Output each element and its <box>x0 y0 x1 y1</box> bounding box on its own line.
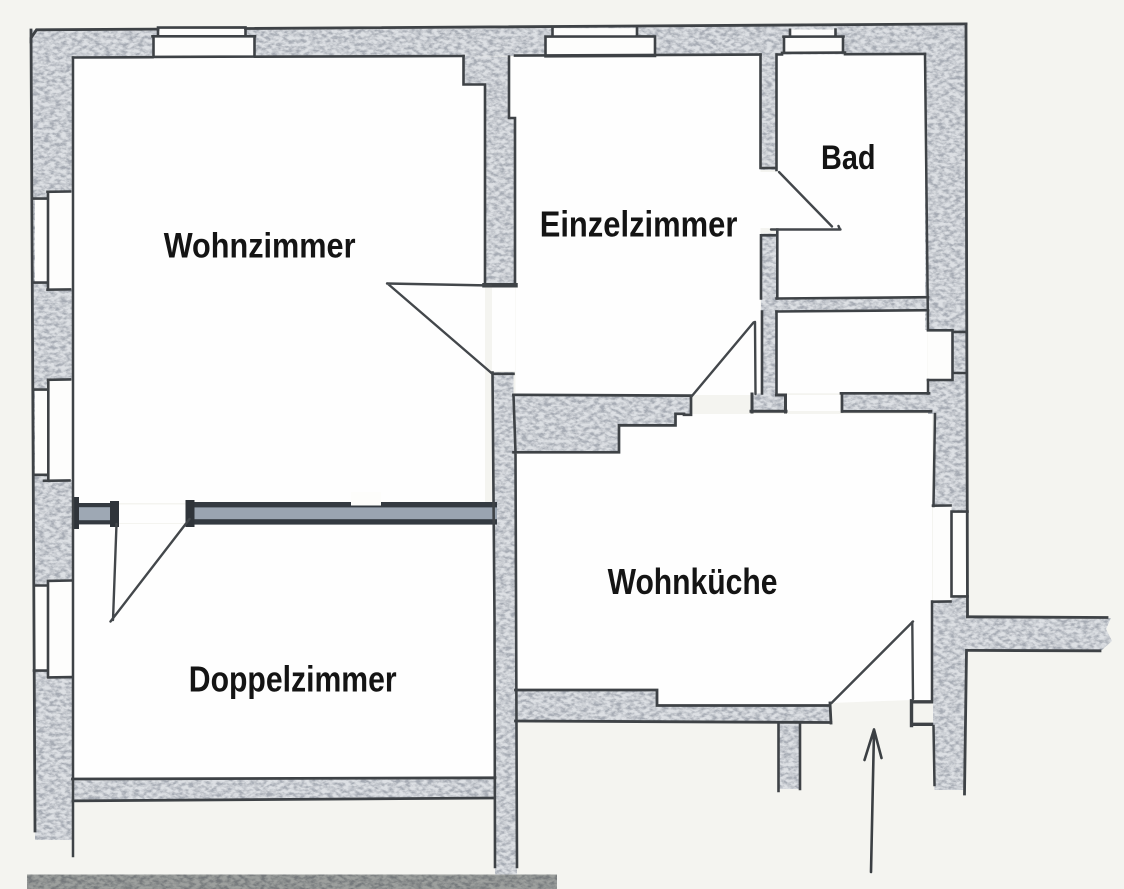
svg-text:Wohnzimmer: Wohnzimmer <box>164 226 356 265</box>
svg-text:Bad: Bad <box>821 139 876 177</box>
svg-text:Einzelzimmer: Einzelzimmer <box>540 203 738 244</box>
svg-text:Doppelzimmer: Doppelzimmer <box>189 659 397 700</box>
svg-text:Wohnküche: Wohnküche <box>608 562 778 602</box>
